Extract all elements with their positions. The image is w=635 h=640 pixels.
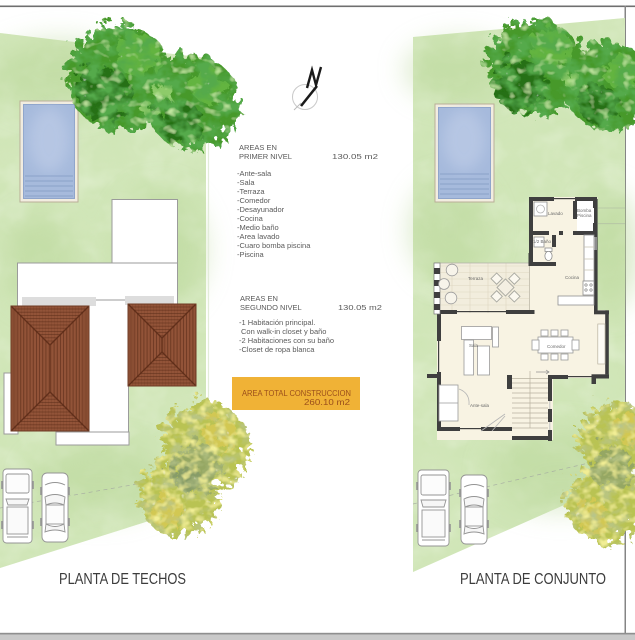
svg-text:1/2 Baño: 1/2 Baño [533,239,552,244]
svg-text:-Terraza: -Terraza [237,187,265,196]
svg-text:130.05 m2: 130.05 m2 [332,152,378,161]
svg-text:-Piscina: -Piscina [237,250,265,259]
svg-text:Cocina: Cocina [565,275,580,280]
svg-text:-Comedor: -Comedor [237,196,271,205]
svg-text:SEGUNDO NIVEL: SEGUNDO NIVEL [240,303,302,312]
svg-text:Ante-sala: Ante-sala [470,403,490,408]
svg-text:AREAS EN: AREAS EN [239,143,277,152]
svg-text:-Cocina: -Cocina [237,214,264,223]
svg-text:-2 Habitaciones con su baño: -2 Habitaciones con su baño [239,336,334,345]
svg-text:Piscina: Piscina [577,213,592,218]
svg-text:Comedor: Comedor [547,344,566,349]
svg-text:AREAS EN: AREAS EN [240,294,278,303]
svg-text:PRIMER NIVEL: PRIMER NIVEL [239,152,292,161]
svg-text:130.05 m2: 130.05 m2 [338,303,382,312]
svg-text:260.10 m2: 260.10 m2 [304,397,350,407]
svg-text:Lavado: Lavado [548,211,563,216]
svg-text:Sala: Sala [469,343,479,348]
svg-text:PLANTA DE CONJUNTO: PLANTA DE CONJUNTO [460,571,606,588]
svg-text:-Area lavado: -Area lavado [237,232,280,241]
svg-text:-Closet de ropa blanca: -Closet de ropa blanca [239,345,315,354]
svg-text:-1 Habitación principal.: -1 Habitación principal. [239,318,315,327]
svg-text:-Medio baño: -Medio baño [237,223,279,232]
svg-text:Terraza: Terraza [468,276,484,281]
svg-text:Con walk-in closet y baño: Con walk-in closet y baño [241,327,326,336]
svg-text:-Ante-sala: -Ante-sala [237,169,272,178]
svg-text:-Sala: -Sala [237,178,255,187]
svg-text:-Desayunador: -Desayunador [237,205,285,214]
svg-text:-Cuaro bomba piscina: -Cuaro bomba piscina [237,241,311,250]
svg-text:PLANTA DE TECHOS: PLANTA DE TECHOS [59,571,186,588]
